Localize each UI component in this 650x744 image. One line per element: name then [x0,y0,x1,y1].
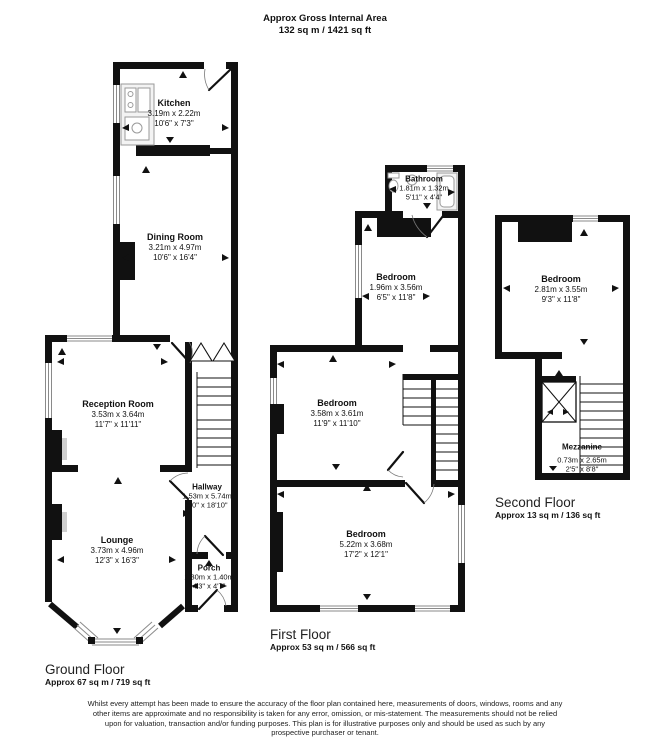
plan-header: Approx Gross Internal Area 132 sq m / 14… [0,13,650,37]
room-name: Bathroom [399,175,449,184]
room-name: Bedroom [340,529,393,540]
room-label-kitchen: Kitchen 3.19m x 2.22m 10'6" x 7'3" [148,98,201,129]
room-imperial: 17'2" x 12'1" [340,549,393,559]
first-stairs [403,374,458,470]
room-metric: 5.22m x 3.68m [340,539,393,549]
room-label-porch: Porch 1.30m x 1.40m 4'3" x 4'7" [184,564,234,591]
room-label-bedroom-rear: Bedroom 1.96m x 3.56m 6'5" x 11'8" [370,272,423,303]
floor-area: Approx 13 sq m / 136 sq ft [495,510,600,521]
floor-area: Approx 67 sq m / 719 sq ft [45,677,150,688]
room-metric: 3.58m x 3.61m [311,408,364,418]
ground-windows [46,85,120,418]
room-label-bedroom-front: Bedroom 5.22m x 3.68m 17'2" x 12'1" [340,529,393,560]
room-imperial: 11'7" x 11'11" [82,419,154,429]
first-floor-label: First Floor Approx 53 sq m / 566 sq ft [270,627,375,653]
second-measure-arrows [503,229,619,471]
room-label-hallway: Hallway 1.53m x 5.74m 5'0" x 18'10" [182,483,232,510]
room-name: Lounge [91,535,144,546]
floorplan-page: Approx Gross Internal Area 132 sq m / 14… [0,0,650,744]
room-imperial: 11'9" x 11'10" [311,418,364,428]
room-name: Bedroom [535,274,588,285]
ground-floor-label: Ground Floor Approx 67 sq m / 719 sq ft [45,662,150,688]
room-name: Hallway [182,483,232,492]
second-floor-label: Second Floor Approx 13 sq m / 136 sq ft [495,495,600,521]
second-floor-plan [495,215,630,480]
room-imperial: 5'0" x 18'10" [182,501,232,510]
room-metric: 3.21m x 4.97m [147,242,203,252]
floor-title: First Floor [270,627,375,642]
disclaimer-text: Whilst every attempt has been made to en… [85,699,565,738]
room-metric: 2.81m x 3.55m [535,284,588,294]
room-label-bathroom: Bathroom 1.81m x 1.32m 5'11" x 4'4" [399,175,449,202]
second-windows [573,216,598,221]
room-name: Bedroom [311,398,364,409]
ground-stairs [190,343,235,468]
room-name: Dining Room [147,232,203,243]
room-name: Kitchen [148,98,201,109]
room-metric: 0.73m x 2.65m [557,456,607,465]
room-name: Bedroom [370,272,423,283]
room-imperial: 6'5" x 11'8" [370,292,423,302]
floor-area: Approx 53 sq m / 566 sq ft [270,642,375,653]
second-walls [495,215,630,480]
room-metric: 1.53m x 5.74m [182,492,232,501]
room-name: Reception Room [82,399,154,410]
room-name: Mezzanine [557,443,607,452]
room-imperial: 10'6" x 16'4" [147,252,203,262]
bay-window [50,604,183,645]
room-label-mezzanine: Mezzanine 0.73m x 2.65m 2'5" x 8'8" [557,443,607,474]
room-imperial: 5'11" x 4'4" [399,193,449,202]
room-label-lounge: Lounge 3.73m x 4.96m 12'3" x 16'3" [91,535,144,566]
room-metric: 1.96m x 3.56m [370,282,423,292]
room-name: Porch [184,564,234,573]
page-title: Approx Gross Internal Area [0,13,650,25]
room-metric: 3.73m x 4.96m [91,545,144,555]
room-label-reception-room: Reception Room 3.53m x 3.64m 11'7" x 11'… [82,399,154,430]
room-metric: 1.30m x 1.40m [184,573,234,582]
room-label-second-bedroom: Bedroom 2.81m x 3.55m 9'3" x 11'8" [535,274,588,305]
room-metric: 3.53m x 3.64m [82,409,154,419]
room-imperial: 12'3" x 16'3" [91,555,144,565]
room-label-bedroom-middle: Bedroom 3.58m x 3.61m 11'9" x 11'10" [311,398,364,429]
room-imperial: 2'5" x 8'8" [557,465,607,474]
floor-title: Ground Floor [45,662,150,677]
room-imperial: 4'3" x 4'7" [184,582,234,591]
room-metric: 3.19m x 2.22m [148,108,201,118]
room-imperial: 9'3" x 11'8" [535,294,588,304]
page-subtitle: 132 sq m / 1421 sq ft [0,25,650,37]
room-imperial: 10'6" x 7'3" [148,118,201,128]
room-label-dining-room: Dining Room 3.21m x 4.97m 10'6" x 16'4" [147,232,203,263]
floor-title: Second Floor [495,495,600,510]
room-metric: 1.81m x 1.32m [399,184,449,193]
mezzanine-void [542,382,576,422]
